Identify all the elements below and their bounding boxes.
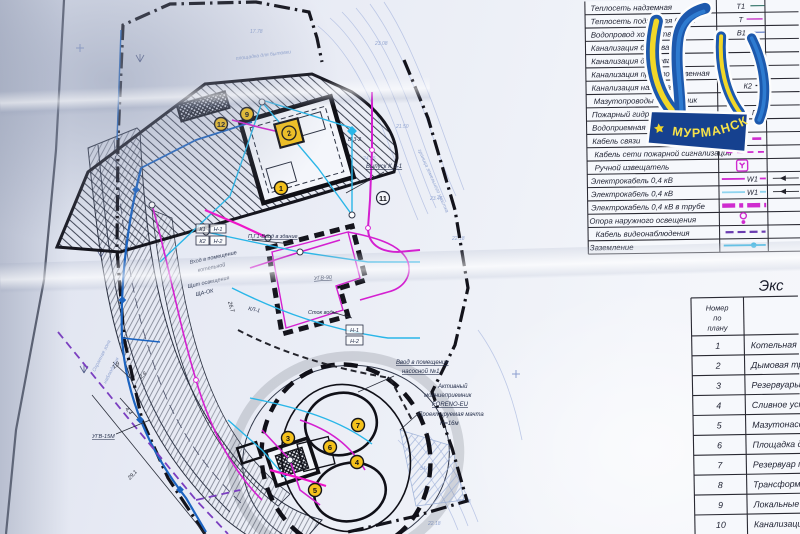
mast-label-line5: Н=16м xyxy=(440,421,459,427)
zone-label-line2: наблюдения xyxy=(102,356,120,384)
marker-1: 1 xyxy=(275,182,288,195)
row-name: Сливное устрой xyxy=(752,399,800,410)
marker-11: 11 xyxy=(377,192,390,205)
explication-title: Экс xyxy=(759,277,785,294)
marker-12: 12 xyxy=(215,118,228,131)
marker-3: 3 xyxy=(282,432,295,445)
row-name: Трансформатор xyxy=(753,478,800,489)
legend-row-label: Электрокабель 0,4 кВ в трубе xyxy=(591,202,705,213)
svg-text:7: 7 xyxy=(356,421,360,430)
legend-row-label: Электрокабель 0,4 кВ xyxy=(591,176,673,186)
plan-drawing: 17.78 23.08 21.50 24.35 23.45 22.18 34.1… xyxy=(0,0,800,534)
legend-row-label: Заземление xyxy=(590,243,635,253)
row-name: Котельная xyxy=(751,339,797,350)
row-num: 1 xyxy=(715,341,720,351)
sheet-frame xyxy=(0,0,64,534)
panel-label-line2: ЩА-ОК xyxy=(195,288,215,298)
pipe-tag: К1 xyxy=(199,227,205,233)
legend-tag: В1 xyxy=(737,28,746,37)
mast-label-line4: Проектируемая мачта xyxy=(418,412,484,418)
yard-label: площадка для бытовки xyxy=(236,49,292,62)
explication-table: Экс Номер по плану 1 Котельная 2 xyxy=(691,277,800,534)
cable-label: КЛ-1 xyxy=(248,306,261,314)
entry-label: П,Г1-Ввод в здание xyxy=(248,234,298,240)
marker-9: 9 xyxy=(241,108,254,121)
pipe-tag: Н-2 xyxy=(214,239,223,245)
marker-4: 4 xyxy=(351,456,364,469)
svg-text:1: 1 xyxy=(279,184,283,193)
svg-text:12: 12 xyxy=(217,120,225,129)
legend-row-label: Опора наружного освещения xyxy=(589,215,697,226)
dim-label: 29,1 xyxy=(126,469,138,482)
legend-tag: К2 xyxy=(743,81,752,90)
legend-tag: W1 xyxy=(747,188,758,197)
parcel-boundary-label: граница земельного участка xyxy=(416,148,450,214)
legend-row-label: Теплосеть надземная xyxy=(590,3,673,13)
header-line1: Номер xyxy=(706,303,729,312)
mast-label-line2: молниеприемник xyxy=(424,393,473,399)
contour-label: 21.50 xyxy=(395,124,409,130)
svg-text:11: 11 xyxy=(379,194,387,203)
pipe-tag: К2 xyxy=(199,239,205,245)
pipe-tag: Н-2 xyxy=(350,339,359,345)
legend-row-label: Электрокабель 0,4 кВ xyxy=(591,189,673,199)
contour-label: 23.08 xyxy=(374,41,388,47)
row-name: Площадка для А xyxy=(752,439,800,450)
legend-row-label: Кабель связи xyxy=(592,136,641,146)
header-line2: по xyxy=(713,313,721,322)
svg-text:6: 6 xyxy=(328,443,332,452)
row-name: Мазутонасосна xyxy=(752,419,800,430)
legend-tag: Т1 xyxy=(736,2,745,11)
svg-text:5: 5 xyxy=(313,486,317,495)
marker-2-chimney: 2 xyxy=(274,118,303,147)
row-num: 6 xyxy=(717,440,722,450)
groundwater-label: УГВ-15М xyxy=(91,434,115,440)
legend-row-label: Кабель видеонаблюдения xyxy=(596,229,691,239)
row-num: 2 xyxy=(715,361,721,371)
legend-tag: Т xyxy=(739,15,744,24)
mast-label-line3: FORENO-EU xyxy=(432,402,469,408)
row-num: 3 xyxy=(716,381,721,391)
row-num: 9 xyxy=(718,500,723,510)
row-name: Канализационн xyxy=(754,518,800,529)
legend-row-label: Канализация бытовая xyxy=(591,43,674,53)
header-line3: плану xyxy=(707,323,729,332)
row-name: Резервуары по xyxy=(751,379,800,390)
legend-row-label: Канализация дождевая xyxy=(591,56,676,66)
groundwater-label: УГВ-90 xyxy=(313,275,333,282)
dim-label: 26,7 xyxy=(226,300,235,314)
marker-5: 5 xyxy=(309,484,322,497)
site-plan-photo: 17.78 23.08 21.50 24.35 23.45 22.18 34.1… xyxy=(0,0,800,534)
row-name: Локальные очист xyxy=(752,498,800,509)
row-num: 10 xyxy=(716,520,726,530)
panel-label-line1: Щит освещения xyxy=(187,275,230,290)
inlet-label-line1: Ввод в помещения xyxy=(396,360,449,366)
row-name: Дымовая труба xyxy=(750,359,800,370)
legend-row-label: Ручной извещатель xyxy=(595,162,670,172)
contour-label: 17.78 xyxy=(250,29,263,35)
marker-7: 7 xyxy=(352,419,365,432)
drain-label: Сток воды xyxy=(308,310,337,316)
row-num: 5 xyxy=(717,420,722,430)
inlet-label-line2: насосной №1 xyxy=(402,368,439,375)
mast-label-line1: Активный xyxy=(437,383,468,390)
pipe-label: В 3-2 xyxy=(348,137,361,143)
row-name: Резервуар подзе xyxy=(753,458,800,469)
door-label-line1: Вход в помещение xyxy=(189,250,237,266)
row-num: 8 xyxy=(718,480,723,490)
svg-text:9: 9 xyxy=(245,110,249,119)
row-num: 4 xyxy=(716,401,721,411)
legend-tag: W1 xyxy=(747,174,758,183)
marker-6: 6 xyxy=(324,441,337,454)
pipe-tag: Н-1 xyxy=(350,328,359,334)
svg-text:3: 3 xyxy=(286,434,290,443)
outlet-label: Выпуск К 3-1 xyxy=(366,164,402,170)
pipe-tag: Н-1 xyxy=(214,227,223,233)
